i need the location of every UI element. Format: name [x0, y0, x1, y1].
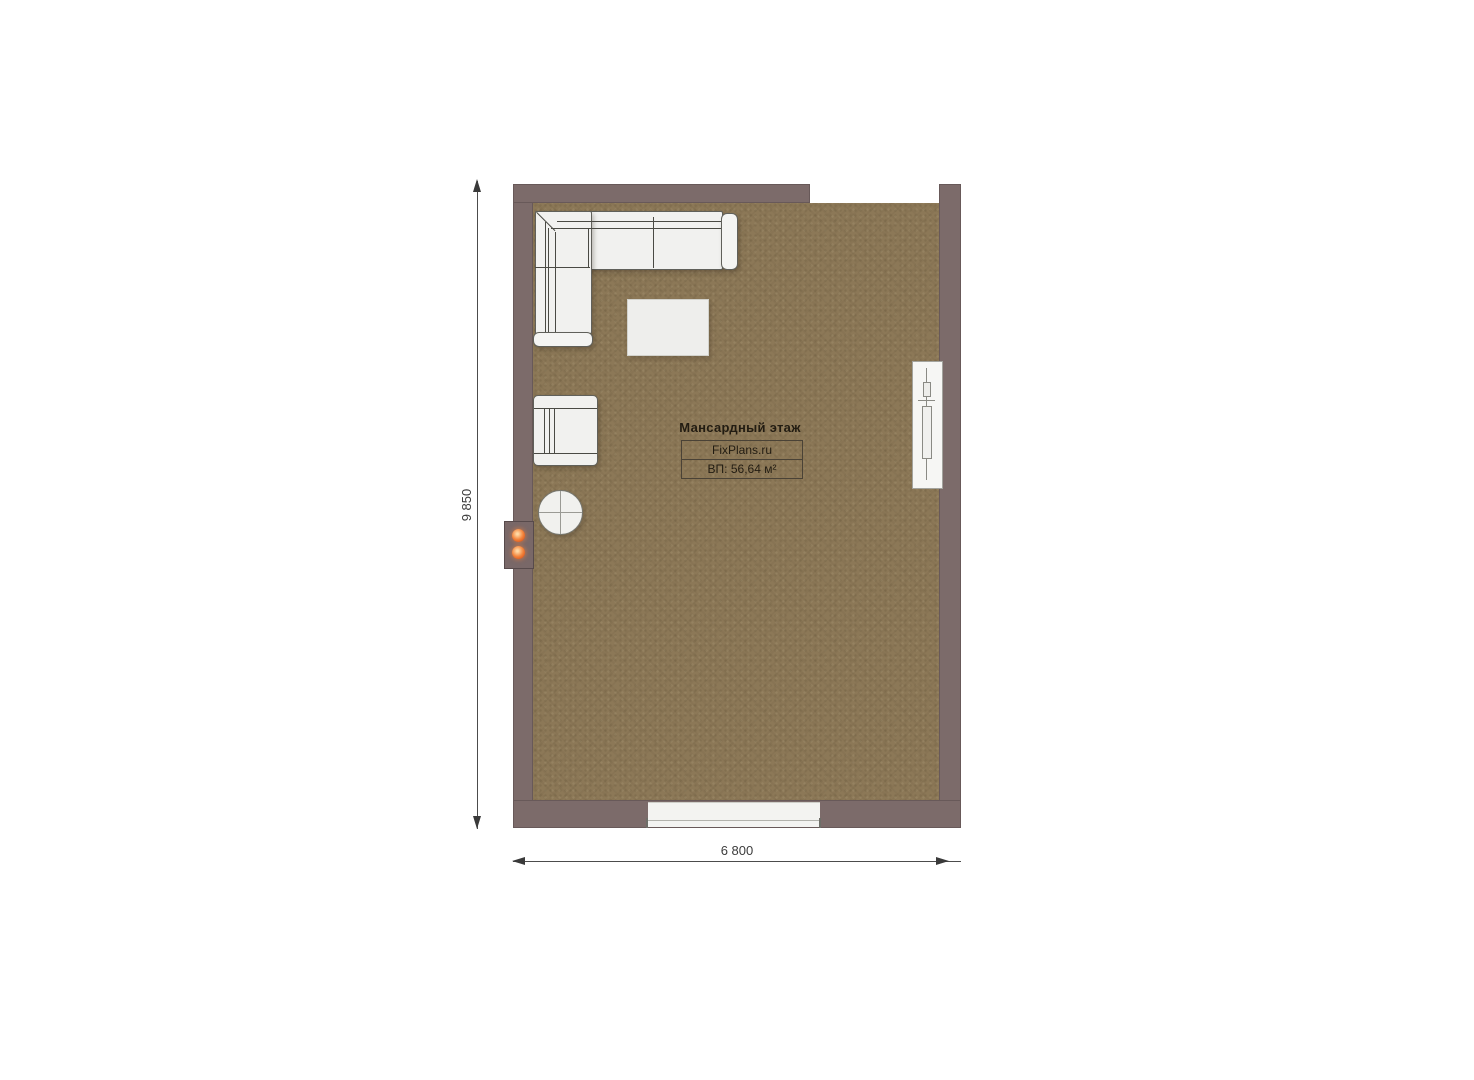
wall-top	[513, 184, 810, 203]
sofa-seat-divider	[588, 228, 589, 268]
floor	[533, 203, 939, 800]
wall-left	[513, 184, 533, 828]
armchair-backrest-line	[549, 408, 550, 453]
roof-window-handle	[923, 382, 931, 397]
sofa-backrest-line	[548, 228, 549, 332]
dimension-arrow-right-icon	[936, 857, 949, 865]
table-centerline	[560, 491, 561, 534]
roof-window-crossbar	[918, 400, 935, 401]
sofa-armrest-right	[721, 213, 738, 270]
window-edge-tick	[646, 818, 648, 828]
sofa-backrest-line	[545, 222, 546, 332]
dimension-line-horizontal	[513, 861, 961, 862]
sofa-seat-divider	[535, 267, 590, 268]
round-side-table	[538, 490, 583, 535]
armchair-armrest-line	[534, 453, 597, 454]
wall-right	[939, 184, 961, 828]
brand-label: FixPlans.ru	[682, 441, 802, 460]
armchair	[533, 395, 598, 466]
roof-window	[912, 361, 943, 489]
indicator-light-icon	[512, 529, 525, 542]
indicator-light-icon	[512, 546, 525, 559]
dimension-label-horizontal: 6 800	[697, 843, 777, 859]
dimension-label-vertical: 9 850	[459, 465, 475, 545]
sofa-seat-divider	[653, 217, 654, 268]
bottom-window	[648, 802, 820, 827]
window-sill-line	[648, 820, 820, 821]
heating-panel	[504, 521, 534, 569]
armchair-backrest-line	[544, 408, 545, 453]
sofa-backrest-line	[555, 232, 556, 332]
window-edge-tick	[819, 818, 821, 828]
roof-window-shaft	[922, 406, 932, 459]
dimension-arrow-left-icon	[512, 857, 525, 865]
area-label: ВП: 56,64 м²	[682, 460, 802, 478]
dimension-arrow-up-icon	[473, 179, 481, 192]
floor-title: Мансардный этаж	[640, 420, 840, 435]
dimension-line-vertical	[477, 181, 478, 829]
drawing-sheet: Мансардный этаж FixPlans.ru ВП: 56,64 м²…	[0, 0, 1474, 1080]
sofa-backrest-line	[551, 228, 721, 229]
sofa-backrest-line	[557, 221, 721, 222]
corner-sofa-vertical-section	[535, 211, 592, 334]
coffee-table	[627, 299, 709, 356]
dimension-arrow-down-icon	[473, 816, 481, 829]
title-box: FixPlans.ru ВП: 56,64 м²	[681, 440, 803, 479]
sofa-armrest-bottom	[533, 332, 593, 347]
armchair-backrest-line	[554, 408, 555, 453]
